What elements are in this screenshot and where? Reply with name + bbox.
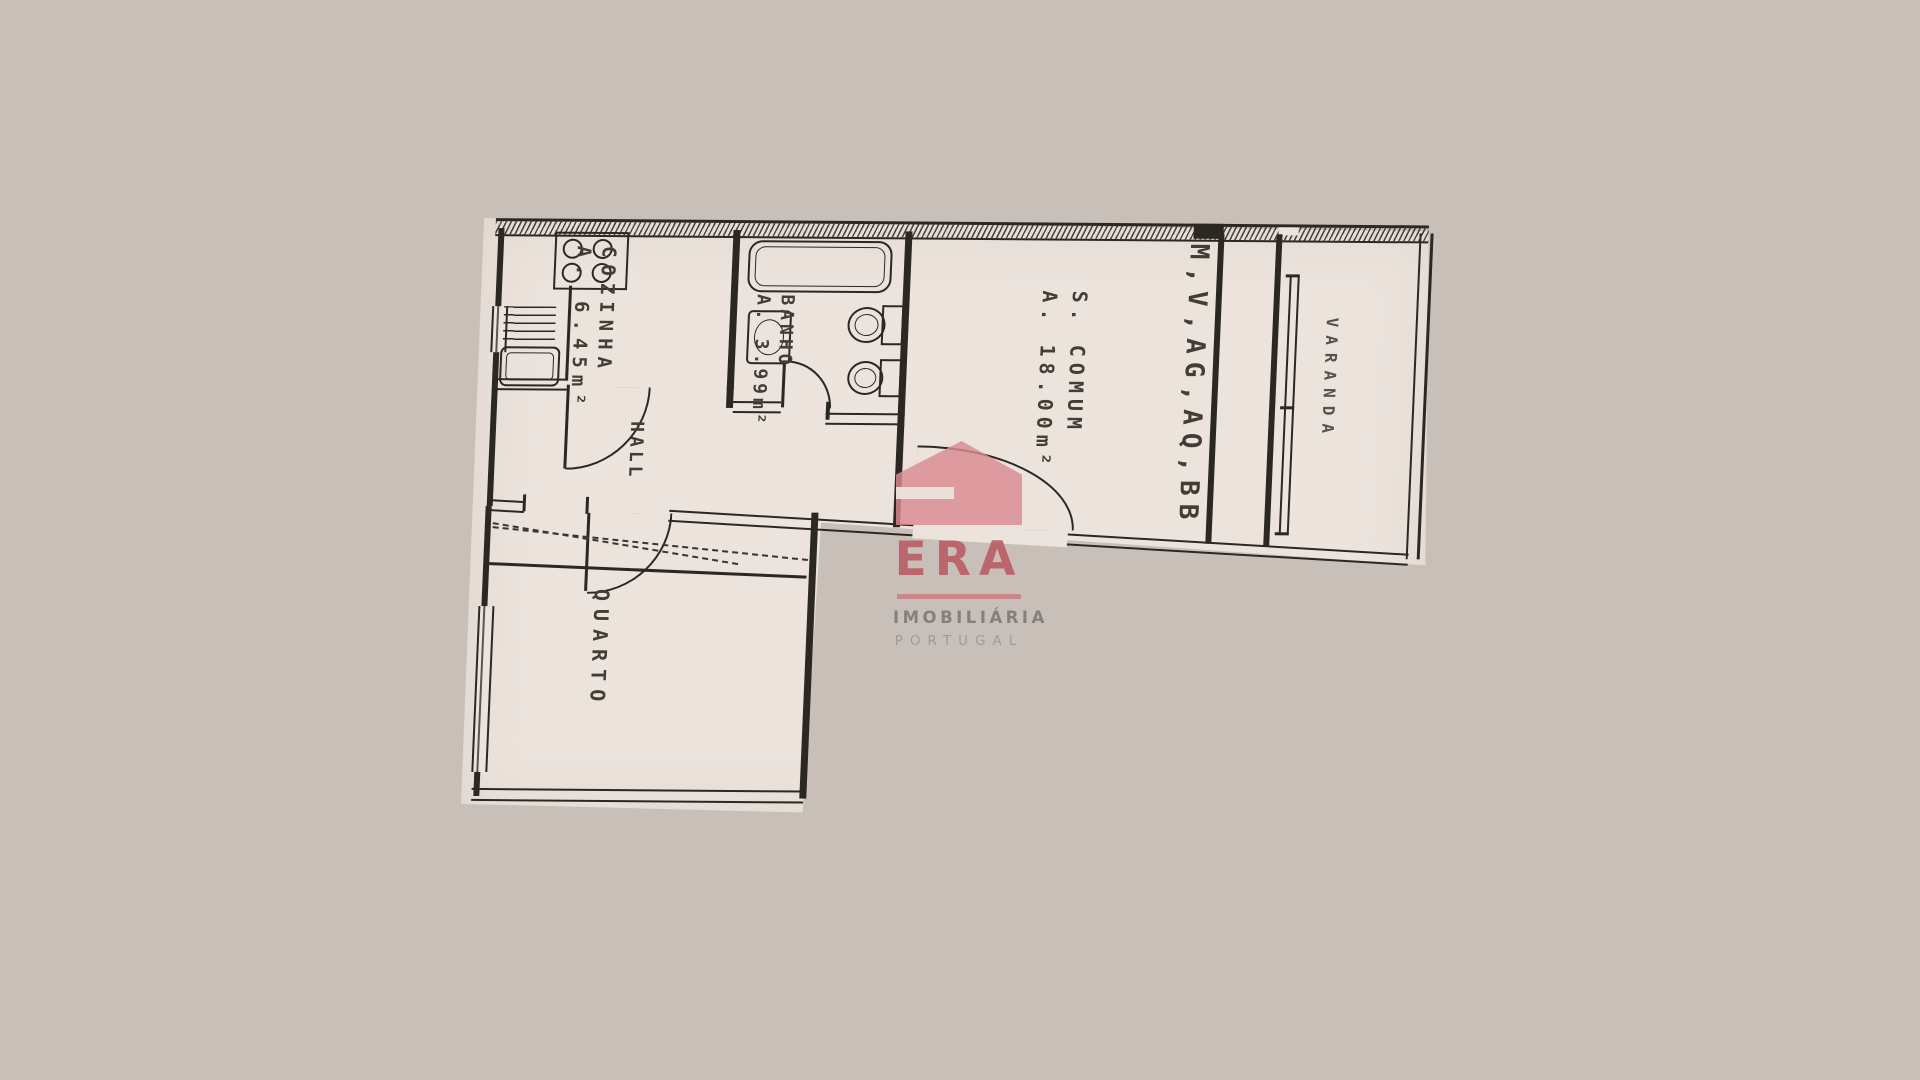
era-watermark: ERA IMOBILIÁRIA PORTUGAL — [893, 441, 1025, 649]
era-house-icon — [896, 441, 1022, 525]
varanda-window-tick-top — [1286, 274, 1300, 277]
varanda-window-tick-bottom — [1275, 532, 1289, 535]
era-house-slot — [896, 487, 954, 499]
room-label-shaft: M,V,AG,AQ,BB — [1112, 243, 1274, 528]
room-label-quarto: QUARTO — [537, 588, 662, 709]
era-portugal-text: PORTUGAL — [893, 633, 1025, 649]
page: { "colors": { "background": "#c9bfb9", "… — [0, 0, 1920, 1080]
room-label-hall: HALL — [582, 421, 690, 481]
era-imobiliaria-text: IMOBILIÁRIA — [893, 608, 1025, 627]
room-label-varanda: VARANDA — [1280, 317, 1380, 441]
wall-quarto-bottom — [471, 788, 804, 804]
room-label-banho: BANHOA. 3.99m² — [697, 294, 847, 429]
era-brand-text: ERA — [893, 535, 1025, 585]
room-label-cozinha: COZINHAA. 6.45m² — [514, 245, 671, 412]
bathtub — [747, 240, 893, 293]
era-underline — [897, 594, 1021, 599]
